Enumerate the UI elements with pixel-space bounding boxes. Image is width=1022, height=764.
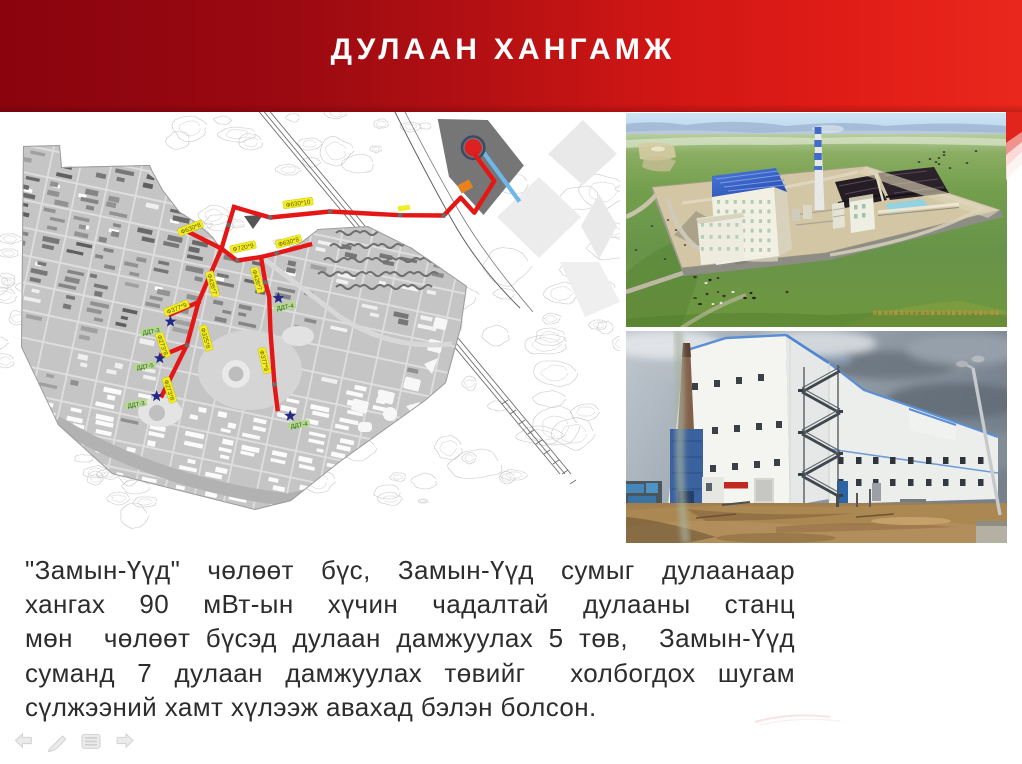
svg-text:Ф720*9: Ф720*9 — [232, 242, 255, 253]
